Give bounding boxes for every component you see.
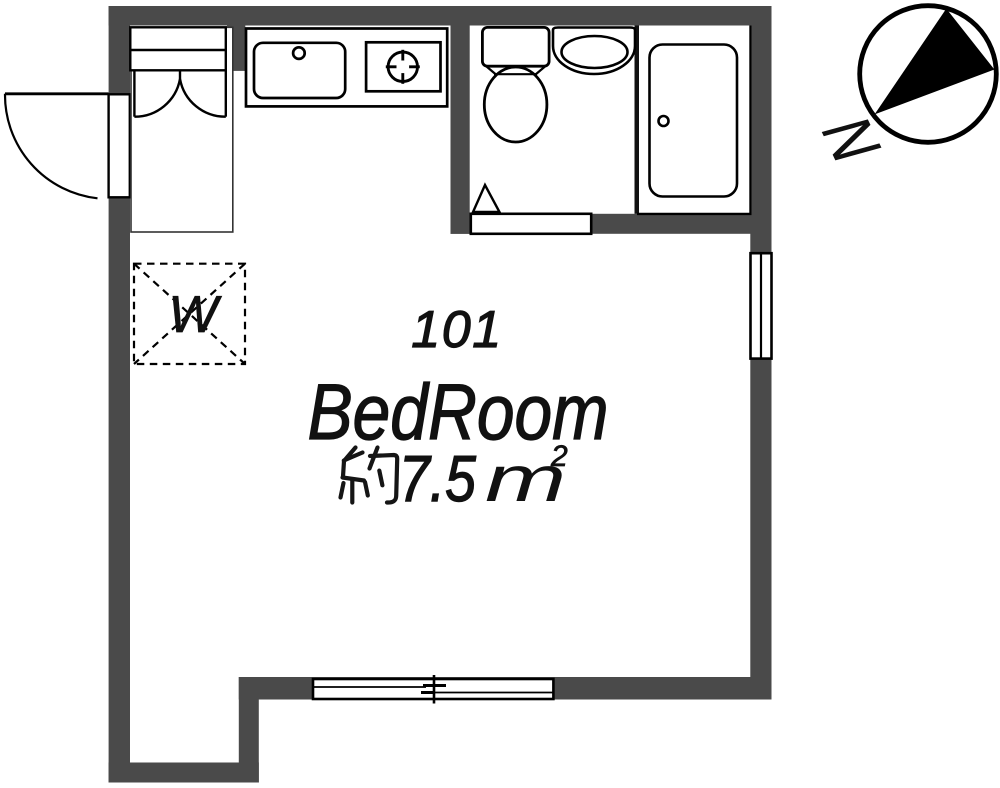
svg-text:101: 101 [411, 301, 503, 359]
svg-text:2: 2 [550, 440, 568, 473]
svg-text:7.5: 7.5 [399, 442, 476, 515]
svg-text:W: W [168, 286, 222, 344]
